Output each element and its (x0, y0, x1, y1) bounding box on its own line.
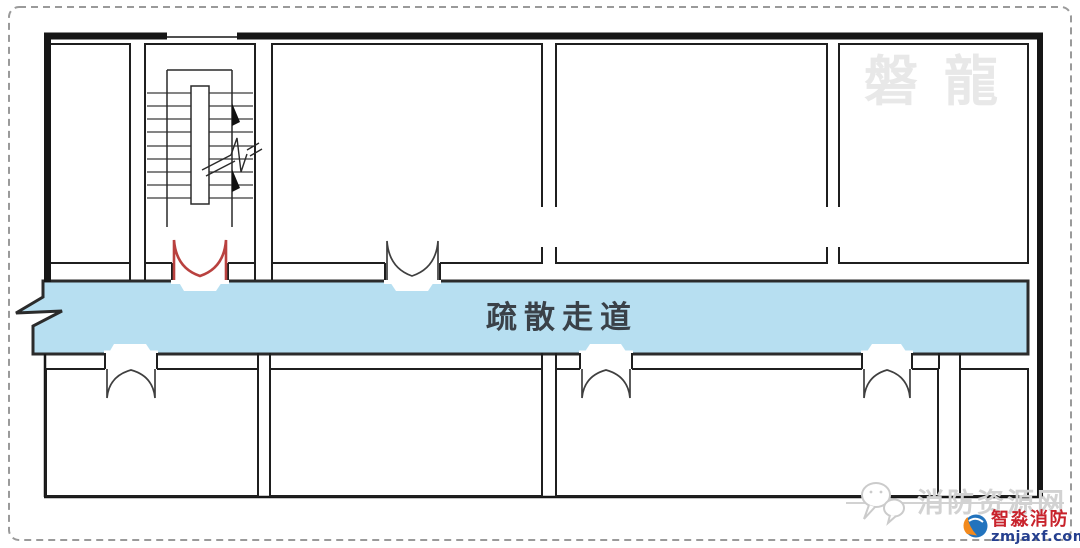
threshold-fan-bl (107, 344, 154, 356)
wechat-bubble-small-tail (888, 515, 896, 523)
room-bottom-mid (270, 369, 542, 496)
corridor-label: 疏散走道 (486, 300, 638, 336)
room-top-left (46, 44, 130, 263)
room-top-c (556, 44, 827, 263)
watermark-panlong: 磐龍 (864, 50, 1024, 113)
wechat-eye-left (870, 491, 873, 494)
floor-plan-canvas: 磐龍 疏散走道 (0, 0, 1080, 548)
double-door-bottom-right (864, 369, 910, 398)
wechat-icon (862, 483, 904, 523)
stair-handrail (191, 86, 209, 204)
room-bottom-big (556, 369, 938, 496)
room-top-b (272, 44, 542, 263)
wechat-bubble-small (884, 500, 904, 517)
wechat-eye-right (880, 491, 883, 494)
fire-door-stairwell (174, 240, 226, 280)
floor-plan-page: 磐龍 疏散走道 (0, 0, 1080, 548)
bottom-rooms (46, 369, 1028, 496)
staircase (147, 70, 262, 227)
wechat-bubble-large-tail (864, 505, 875, 519)
evacuation-corridor: 疏散走道 (16, 281, 1028, 354)
double-door-room-b (387, 241, 438, 280)
brand-domain: zmjaxf.com (991, 529, 1080, 545)
double-door-bottom-mid (582, 369, 630, 398)
threshold-fan-stair (177, 279, 224, 291)
threshold-fan-room-b (388, 279, 436, 291)
room-bottom-right (960, 369, 1028, 496)
brand-name: 智淼消防 (991, 508, 1069, 530)
double-door-bottom-left (107, 369, 155, 398)
threshold-fan-bm (582, 344, 629, 356)
